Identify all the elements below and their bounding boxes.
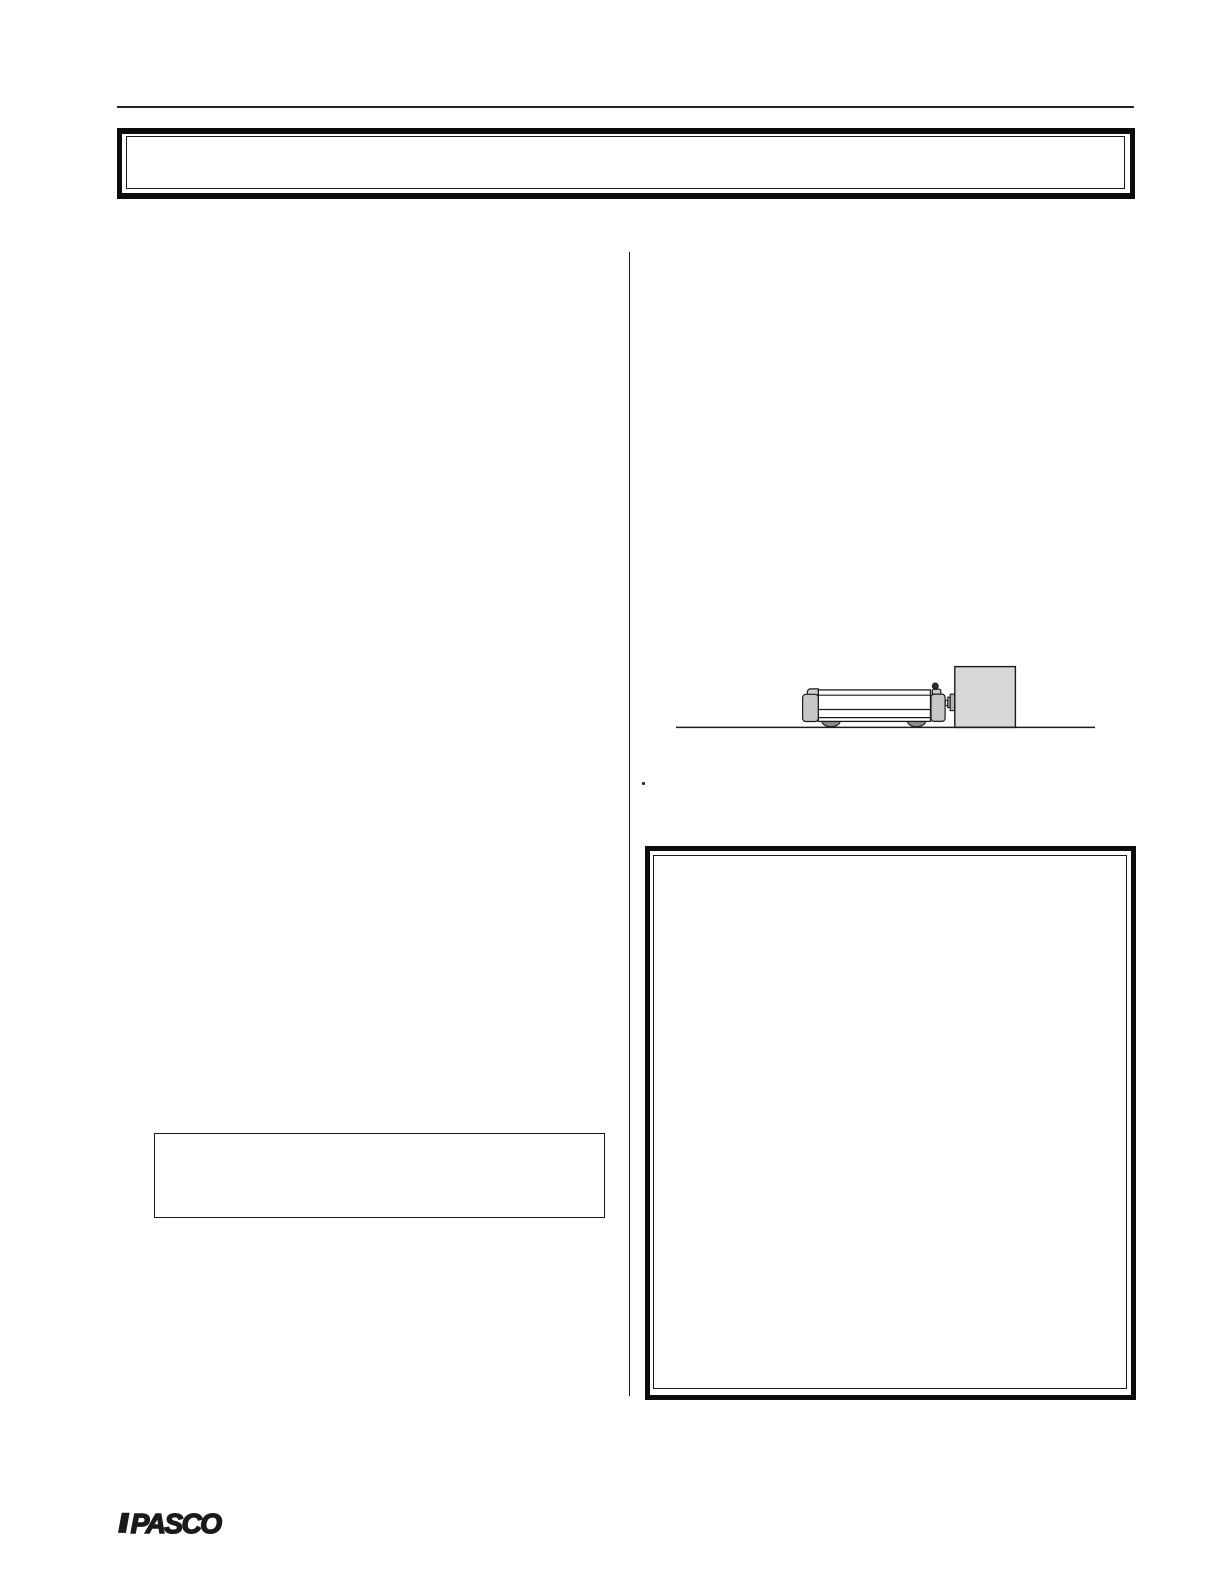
svg-text:PASCO: PASCO: [131, 1508, 223, 1539]
